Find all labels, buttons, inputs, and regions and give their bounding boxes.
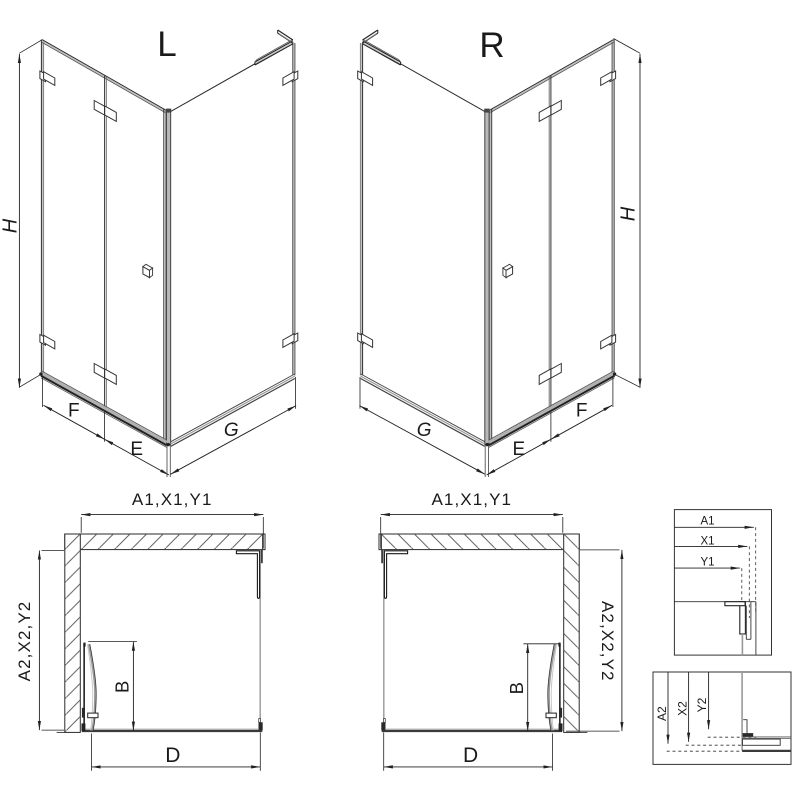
svg-text:A1,X1,Y1: A1,X1,Y1 — [132, 490, 213, 509]
svg-text:B: B — [111, 681, 132, 693]
svg-text:D: D — [463, 744, 478, 767]
svg-text:A2,X2,Y2: A2,X2,Y2 — [598, 601, 617, 682]
svg-text:G: G — [417, 420, 432, 441]
svg-text:B: B — [506, 682, 527, 694]
svg-text:A1: A1 — [700, 516, 714, 528]
svg-text:H: H — [0, 218, 22, 233]
svg-text:A2,X2,Y2: A2,X2,Y2 — [15, 601, 34, 682]
svg-text:E: E — [130, 439, 143, 460]
svg-text:F: F — [576, 400, 588, 421]
svg-text:E: E — [512, 439, 525, 460]
svg-text:X2: X2 — [676, 701, 690, 716]
svg-text:L: L — [157, 25, 176, 64]
svg-text:R: R — [479, 26, 504, 65]
svg-text:H: H — [618, 206, 640, 221]
svg-text:A1,X1,Y1: A1,X1,Y1 — [431, 490, 512, 509]
svg-text:X1: X1 — [700, 535, 714, 547]
svg-text:G: G — [224, 420, 239, 441]
svg-text:D: D — [165, 744, 180, 767]
svg-text:F: F — [68, 400, 80, 421]
svg-text:A2: A2 — [655, 706, 669, 721]
svg-text:Y1: Y1 — [700, 556, 714, 568]
svg-text:Y2: Y2 — [695, 697, 709, 712]
